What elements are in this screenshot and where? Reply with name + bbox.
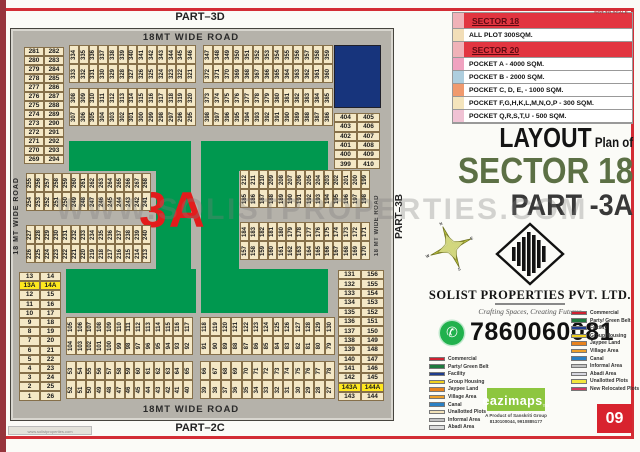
plot-cell: 371 [213,64,223,83]
plot-cell: 352 [253,45,263,64]
plot-cell: 204 [314,170,323,189]
plot-cell: 226 [26,244,35,263]
plot-cell: 361 [313,64,323,83]
plot-cell: 243 [124,192,133,211]
plot-cell: 367 [253,64,263,83]
plot-cell: 172 [351,222,360,241]
legend-label: Party/ Green Belt [590,318,631,324]
plot-cell: 261 [80,173,89,192]
plot-cell: 44 [144,380,154,399]
legend-swatch [429,395,445,400]
plot-cell: 194 [324,189,333,208]
plot-cell: 235 [97,225,106,244]
plot-cell: 383 [303,88,313,107]
frame-line-top [6,8,634,11]
legend-swatch [453,84,464,96]
legend-label: Abadi Area [448,424,474,430]
legend-item: Facility [571,325,633,331]
plot-cell: 326 [137,64,147,83]
plot-cell: 6 [19,346,40,355]
plot-cell: 141 [338,364,361,373]
plot-cell: 311 [98,88,108,107]
plot-cell: 93 [173,336,183,355]
legend-item: Jaypee Land [571,340,633,346]
plot-cell: 157 [240,241,249,260]
plot-cell: 67 [210,361,220,380]
plot-cell: 210 [259,170,268,189]
plot-cell: 228 [35,225,44,244]
plot-cell: 143A [338,383,361,392]
legend-swatch [571,318,587,323]
plot-cell: 85 [262,336,272,355]
legend-swatch [571,311,587,316]
plot-cell: 250 [62,192,71,211]
plot-cell: 227 [26,225,35,244]
plot-cell: 147 [361,355,384,364]
plot-cell: 115 [164,317,174,336]
plot-pair-block: 404405403406402407401408400409399410 [334,113,380,169]
plot-cell: 36 [231,380,241,399]
plot-cell: 57 [105,361,115,380]
plot-cell: 87 [242,336,252,355]
plot-cell: 396 [223,107,233,126]
plot-cell: 185 [240,189,249,208]
plot-cell: 108 [95,317,105,336]
plot-cell: 253 [35,192,44,211]
plot-cell: 408 [357,141,380,150]
plot-cell: 291 [44,128,64,137]
plot-cell: 150 [361,326,384,335]
plot-cell: 403 [334,122,357,131]
plot-cell: 320 [186,88,196,107]
plot-cell: 391 [273,107,283,126]
plot-cell: 52 [66,380,76,399]
plot-cell: 258 [53,173,62,192]
plot-cell: 366 [263,64,273,83]
title-layout: LAYOUT Plan of [499,124,633,152]
plot-cell: 123 [252,317,262,336]
plot-cell: 126 [283,317,293,336]
plot-cell: 182 [259,222,268,241]
plot-cell: 154 [361,289,384,298]
plot-cell: 304 [98,107,108,126]
plot-cell: 73 [273,361,283,380]
frame-line-bottom [6,436,634,439]
plot-cell: 113 [144,317,154,336]
plot-cell: 18 [40,318,61,327]
plot-pair-block: 2812822802832792842782852772862762872752… [24,47,64,164]
plot-cell: 12 [19,290,40,299]
plot-pair-block: 1311561321551331541341531351521361511371… [338,270,384,401]
plot-cell: 287 [44,92,64,101]
company-rule [495,303,565,305]
plot-cell: 13 [19,272,40,281]
plot-cell: 379 [263,88,273,107]
plot-cell: 375 [223,88,233,107]
legend-swatch [429,387,445,392]
plot-cell: 140 [338,355,361,364]
plot-cell: 215 [124,244,133,263]
plot-cell: 270 [24,146,44,155]
plot-cell: 64 [173,361,183,380]
phone-icon: ✆ [440,321,464,345]
plot-cell: 382 [293,88,303,107]
plot-cell: 393 [253,107,263,126]
plot-cell: 407 [357,132,380,141]
plot-cell: 65 [183,361,193,380]
plot-cell: 240 [142,225,151,244]
legend-label: POCKET Q,R,S,T,U - 500 SQM. [464,110,632,122]
plot-cell: 387 [313,107,323,126]
plot-cell: 53 [66,361,76,380]
plot-cell: 353 [263,45,273,64]
plot-cell: 252 [44,192,53,211]
plot-cell: 222 [62,244,71,263]
plot-strip: 1181191201211221231241251261271281291309… [200,317,335,355]
plot-cell: 173 [342,222,351,241]
page-left-stripe [0,0,6,452]
legend-swatch [453,71,464,83]
plot-cell: 317 [157,88,167,107]
plot-cell: 402 [334,132,357,141]
plot-cell: 43 [154,380,164,399]
plot-cell: 28 [314,380,324,399]
plot-cell: 298 [157,107,167,126]
legend-item: Informal Area [571,363,633,369]
plot-cell: 355 [283,45,293,64]
plot-cell: 181 [268,222,277,241]
legend-item: Group Housing [571,333,633,339]
plot-cell: 33 [262,380,272,399]
plot-cell: 334 [69,45,79,64]
legend-label: Village Area [448,394,476,400]
legend-label: Jaypee Land [590,340,620,346]
plot-cell: 7 [19,336,40,345]
plot-cell: 331 [89,64,99,83]
plot-cell: 327 [128,64,138,83]
plot-cell: 217 [106,244,115,263]
not-to-scale-note: NOT TO SCALE [590,10,632,16]
plot-cell: 315 [137,88,147,107]
plot-cell: 180 [277,222,286,241]
plot-cell: 160 [268,241,277,260]
plot-pair-block: 131413A14A121511161017918819720621522423… [19,272,61,401]
plot-cell: 193 [314,189,323,208]
plot-cell: 146 [361,364,384,373]
plot-cell: 11 [19,300,40,309]
plot-cell: 295 [186,107,196,126]
plot-cell: 152 [361,308,384,317]
plot-cell: 31 [283,380,293,399]
plot-cell: 218 [97,244,106,263]
plot-cell: 74 [283,361,293,380]
legend-item: Party/ Green Belt [571,318,633,324]
plot-cell: 2 [19,382,40,391]
plot-cell: 330 [98,64,108,83]
road-label-bottom: 18MT WIDE ROAD [11,404,371,415]
plot-cell: 106 [76,317,86,336]
plot-cell: 168 [342,241,351,260]
plot-cell: 174 [333,222,342,241]
plot-cell: 389 [293,107,303,126]
plot-cell: 329 [108,64,118,83]
plot-cell: 231 [62,225,71,244]
plot-cell: 264 [106,173,115,192]
plot-cell: 348 [213,45,223,64]
legend-item: POCKET B - 2000 SQM. [453,71,632,84]
plot-cell: 49 [95,380,105,399]
plot-cell: 385 [323,88,333,107]
plot-cell: 394 [243,107,253,126]
plot-cell: 164 [305,241,314,260]
plot-cell: 269 [24,155,44,164]
plot-cell: 104 [66,336,76,355]
plot-cell: 284 [44,65,64,74]
legend-swatch [453,110,464,122]
plot-cell: 202 [333,170,342,189]
legend-swatch [571,364,587,369]
title-block: LAYOUT Plan of SECTOR 18 PART -3A [408,124,633,221]
plot-cell: 184 [240,222,249,241]
legend-label: New Relocated Plots [590,386,639,392]
part-2c-label: PART–2C [130,422,270,434]
eazimaps-logo: eazimapsTM [487,388,545,411]
plot-cell: 288 [44,101,64,110]
plot-cell: 79 [325,336,335,355]
plot-cell: 316 [147,88,157,107]
legend-item: Group Housing [429,379,549,385]
plot-cell: 89 [221,336,231,355]
plot-cell: 296 [176,107,186,126]
plot-cell: 373 [203,88,213,107]
legend-label: Village Area [590,348,618,354]
plot-cell: 376 [233,88,243,107]
plot-cell: 336 [89,45,99,64]
plot-cell: 158 [249,241,258,260]
plot-cell: 32 [273,380,283,399]
legend-swatch [429,418,445,423]
plot-cell: 111 [125,317,135,336]
plot-cell: 381 [283,88,293,107]
title-part: PART -3A [510,190,633,222]
plot-cell: 84 [273,336,283,355]
plot-cell: 78 [325,361,335,380]
compass-n: N [439,221,444,227]
plot-cell: 97 [134,336,144,355]
plot-cell: 70 [242,361,252,380]
plot-cell: 322 [176,64,186,83]
plot-cell: 151 [361,317,384,326]
plot-cell: 224 [44,244,53,263]
plot-cell: 10 [19,309,40,318]
part-3b-label: PART–3B [394,194,405,239]
plot-cell: 239 [133,225,142,244]
legend-item: POCKET F,G,H,K,L,M,N,O,P - 300 SQM. [453,97,632,110]
legend-item: Commercial [429,356,549,362]
plot-cell: 292 [44,137,64,146]
plot-cell: 319 [176,88,186,107]
legend-swatch [571,356,587,361]
plot-cell: 81 [304,336,314,355]
eazimaps-tm: TM [543,403,550,408]
plot-cell: 51 [76,380,86,399]
plot-cell: 368 [243,64,253,83]
plot-cell: 161 [277,241,286,260]
plot-cell: 223 [53,244,62,263]
legend-swatch [571,379,587,384]
plot-cell: 358 [313,45,323,64]
plot-cell: 273 [24,119,44,128]
plot-cell: 48 [105,380,115,399]
legend-label: POCKET F,G,H,K,L,M,N,O,P - 300 SQM. [464,97,632,109]
plot-cell: 333 [69,64,79,83]
plot-cell: 364 [283,64,293,83]
plot-cell: 9 [19,318,40,327]
plot-cell: 340 [128,45,138,64]
legend-swatch [429,364,445,369]
plot-cell: 354 [273,45,283,64]
plot-cell: 289 [44,110,64,119]
legend-item: Canal [571,356,633,362]
plot-cell: 272 [24,128,44,137]
legend-swatch [429,425,445,430]
plot-cell: 406 [357,122,380,131]
plot-cell: 120 [221,317,231,336]
plot-cell: 63 [164,361,174,380]
eazimaps-subtext: A Product of Sanskriti Group 8130100044,… [476,413,556,426]
plot-cell: 338 [108,45,118,64]
plot-cell: 21 [40,346,61,355]
plot-cell: 22 [40,355,61,364]
plot-cell: 23 [40,364,61,373]
green-belt [66,269,196,313]
plot-cell: 283 [44,56,64,65]
plot-cell: 214 [133,244,142,263]
plot-cell: 299 [147,107,157,126]
plot-cell: 395 [233,107,243,126]
plot-cell: 72 [262,361,272,380]
plot-cell: 405 [357,113,380,122]
plot-cell: 128 [304,317,314,336]
plot-strip: 3083093103113123133143153163173183193203… [69,88,196,126]
plot-cell: 347 [203,45,213,64]
plot-cell: 380 [273,88,283,107]
plot-cell: 255 [26,173,35,192]
plot-cell: 388 [303,107,313,126]
plot-cell: 91 [200,336,210,355]
plot-cell: 392 [263,107,273,126]
plot-cell: 238 [124,225,133,244]
plot-cell: 29 [304,380,314,399]
plot-cell: 390 [283,107,293,126]
plot-cell: 279 [24,65,44,74]
plot-cell: 190 [286,189,295,208]
plot-cell: 135 [338,308,361,317]
layout-map: 18MT WIDE ROAD 18MT WIDE ROAD 18 MT WIDE… [10,28,394,421]
plot-cell: 69 [231,361,241,380]
plot-cell: 42 [164,380,174,399]
legend-header-sector20: SECTOR 20 [453,42,632,58]
plot-cell: 153 [361,298,384,307]
plot-cell: 211 [249,170,258,189]
plot-cell: 162 [286,241,295,260]
plot-cell: 59 [125,361,135,380]
plot-cell: 131 [338,270,361,279]
plot-cell: 386 [323,107,333,126]
plot-cell: 313 [118,88,128,107]
plot-strip: 3343353363373383393403413423433443453463… [69,45,196,83]
legend-label: POCKET C, D, E, - 1000 SQM. [464,84,632,96]
plot-cell: 88 [231,336,241,355]
plot-cell: 369 [233,64,243,83]
plot-cell: 225 [35,244,44,263]
plot-cell: 372 [203,64,213,83]
plot-cell: 39 [200,380,210,399]
plot-cell: 117 [183,317,193,336]
plot-cell: 143 [338,392,361,401]
plot-cell: 216 [115,244,124,263]
plot-cell: 95 [154,336,164,355]
plot-cell: 132 [338,279,361,288]
plot-cell: 234 [88,225,97,244]
plot-cell: 344 [167,45,177,64]
plot-cell: 27 [325,380,335,399]
plot-cell: 378 [253,88,263,107]
road-label-right: 18 MT WIDE ROAD [374,195,380,256]
plot-cell: 17 [40,309,61,318]
plot-cell: 245 [106,192,115,211]
plot-cell: 302 [118,107,128,126]
legend-swatch [571,326,587,331]
plot-cell: 278 [24,74,44,83]
legend-label: Unallotted Plots [590,378,628,384]
plot-cell: 349 [223,45,233,64]
plot-cell: 145 [361,373,384,382]
plot-cell: 127 [293,317,303,336]
plot-cell: 325 [147,64,157,83]
plot-cell: 3 [19,373,40,382]
plot-cell: 129 [314,317,324,336]
plot-cell: 38 [210,380,220,399]
plot-cell: 232 [71,225,80,244]
plot-cell: 290 [44,119,64,128]
legend-item: ALL PLOT 300SQM. [453,29,632,42]
plot-cell: 90 [210,336,220,355]
legend-item: New Relocated Plots [571,386,633,392]
plot-cell: 109 [105,317,115,336]
plot-cell: 86 [252,336,262,355]
legend-label: Facility [448,371,465,377]
plot-cell: 342 [147,45,157,64]
plot-cell: 208 [277,170,286,189]
plot-cell: 359 [323,45,333,64]
legend-label: Commercial [590,310,619,316]
plot-cell: 46 [125,380,135,399]
plot-cell: 47 [115,380,125,399]
plot-cell: 351 [243,45,253,64]
legend-item: POCKET C, D, E, - 1000 SQM. [453,84,632,97]
plot-cell: 212 [240,170,249,189]
compass-e: E [469,235,473,241]
plot-strip: 6667686970717273747576777839383736353433… [200,361,335,399]
plot-cell: 399 [334,159,357,168]
plot-cell: 192 [305,189,314,208]
map-legend-right: CommercialParty/ Green BeltFacilityGroup… [571,310,633,394]
plot-cell: 15 [40,290,61,299]
plot-cell: 307 [69,107,79,126]
plot-cell: 136 [338,317,361,326]
plot-cell: 260 [71,173,80,192]
